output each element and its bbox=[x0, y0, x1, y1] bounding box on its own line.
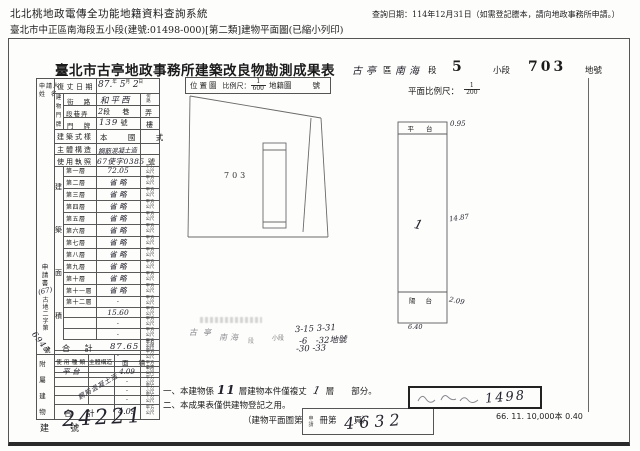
annex-use-type: 平 台 bbox=[54, 366, 88, 377]
map-note-subsection-label: 小段 bbox=[272, 333, 284, 342]
map-ref-label: 地籍圖 bbox=[269, 80, 292, 91]
houseno-unit-1: 號 bbox=[120, 119, 127, 127]
stamp-scribble bbox=[415, 389, 483, 407]
map-note-district: 古亭 bbox=[189, 327, 217, 338]
floor-area-unit: 平方公尺 bbox=[140, 308, 160, 318]
annex-row: ·平方公尺 bbox=[54, 396, 160, 405]
lane-value-wrap: 2段 巷 bbox=[98, 107, 129, 117]
note1-surveyed-floor-hw: 1 bbox=[311, 383, 321, 397]
street-suffix: 街路 bbox=[146, 95, 151, 105]
faded-stamp-text bbox=[200, 317, 262, 323]
floor-area-unit: 平方公尺 bbox=[140, 273, 160, 283]
section-label: 段 bbox=[428, 64, 437, 76]
floor-area-unit: 平方公尺 bbox=[140, 237, 160, 247]
day-unit: 日 bbox=[139, 80, 144, 85]
annex-area-value: · bbox=[114, 387, 140, 395]
floor-label: 第十層 bbox=[64, 274, 96, 283]
map-scale-fraction: 1 600 bbox=[251, 79, 266, 93]
floor-area-value: 省 略 bbox=[96, 249, 140, 260]
floor-area-value: 省 略 bbox=[96, 177, 140, 188]
plan-scale-fraction: 1 200 bbox=[464, 83, 479, 97]
plan-top-dim: 0.95 bbox=[450, 120, 466, 128]
floor-row: 第五層省 略平方公尺 bbox=[54, 213, 160, 225]
floor-area-value: 省 略 bbox=[96, 189, 140, 200]
floor-row: 第三層省 略平方公尺 bbox=[54, 189, 160, 201]
floor-area-value: 省 略 bbox=[96, 213, 140, 224]
floor-label: 第五層 bbox=[64, 214, 96, 223]
map-note-section-label: 段 bbox=[248, 336, 254, 345]
cadastral-sketch bbox=[183, 92, 333, 242]
survey-date-value: 87.年 5月 2日 bbox=[98, 79, 143, 90]
location-map-label: 位置圖 bbox=[190, 80, 219, 91]
print-info: 66. 11. 10,000本 0.40 bbox=[496, 411, 583, 422]
floor-area-value: 省 略 bbox=[96, 285, 140, 296]
registry-stamp-no: 1498 bbox=[484, 388, 526, 407]
floor-row: 第十一層省 略平方公尺 bbox=[54, 285, 160, 297]
floor-area-value: 72.05 bbox=[96, 166, 140, 175]
building-no-value: 24221 bbox=[61, 403, 144, 431]
applicant-doc-suffix: 號 bbox=[44, 344, 51, 354]
floor-area-value: 省 略 bbox=[96, 237, 140, 248]
floor-area-unit: 平方公尺 bbox=[140, 329, 160, 339]
floors-total-value: 87.65 bbox=[110, 342, 139, 352]
houseno-value: 139 bbox=[99, 118, 118, 128]
note1-pre: 一、本建物係 bbox=[163, 387, 214, 397]
applicant-doc-prefix: 古地二字第 bbox=[42, 297, 49, 332]
floor-row: 第九層省 略平方公尺 bbox=[54, 261, 160, 273]
plan-top-label: 平 台 bbox=[398, 123, 447, 133]
floor-area-unit: 平方公尺 bbox=[140, 189, 160, 199]
floor-label: 第三層 bbox=[64, 190, 96, 199]
note1-post: 層 部分。 bbox=[326, 387, 377, 397]
floor-area-unit: 平方公尺 bbox=[140, 261, 160, 271]
parcel-no: 703 bbox=[528, 59, 566, 75]
floor-row: 第八層省 略平方公尺 bbox=[54, 249, 160, 261]
lane-unit-1: 段 bbox=[103, 108, 110, 116]
floor-label: 第八層 bbox=[64, 250, 96, 259]
floor-area-value: 省 略 bbox=[96, 273, 140, 284]
floor-row: 第七層省 略平方公尺 bbox=[54, 237, 160, 249]
survey-date-year: 87. bbox=[98, 80, 112, 90]
plan-scale-wrap: 平面比例尺： 1 200 bbox=[408, 79, 480, 98]
district-name: 古亭 bbox=[352, 62, 380, 77]
map-note-section: 南海 bbox=[219, 332, 241, 343]
applicant-doc-word: 申請書 bbox=[41, 263, 49, 287]
year-unit: 年 bbox=[112, 80, 117, 85]
floor-row: 第二層省 略平方公尺 bbox=[54, 177, 160, 189]
scanned-query-page: 北北桃地政電傳全功能地籍資料查詢系統 查詢日期：114年12月31日（如需登記謄… bbox=[0, 0, 640, 451]
floor-area-unit: 平方公尺 bbox=[140, 285, 160, 295]
receipt-stamp-small: 申請 bbox=[307, 416, 315, 428]
receipt-stamp-no: 4632 bbox=[343, 410, 405, 433]
plan-width-dim: 6.40 bbox=[408, 323, 422, 331]
note-line-1: 一、本建物係11層建物本件僅複丈1層 部分。 bbox=[163, 383, 377, 397]
doorplate-group-label: 建物門牌 bbox=[54, 93, 64, 129]
floor-row: 第六層省 略平方公尺 bbox=[54, 225, 160, 237]
month-unit: 月 bbox=[125, 80, 130, 85]
floor-area-unit: 平方公尺 bbox=[140, 166, 160, 176]
subsection-no: 5 bbox=[452, 59, 462, 75]
annex-header-use: 使用種類 bbox=[56, 357, 87, 366]
floor-label: 第二層 bbox=[64, 178, 96, 187]
receipt-stamp-box: 申請 4632 bbox=[302, 408, 434, 435]
parcel-label: 地號 bbox=[585, 64, 602, 76]
floor-row: ·平方公尺 bbox=[54, 329, 160, 340]
page-subtitle: 臺北市中正區南海段五小段(建號:01498-000)[第二類]建物平面圖(已縮小… bbox=[10, 22, 344, 36]
floors-total-label: 合 計 bbox=[62, 343, 99, 354]
floor-label: 第一層 bbox=[64, 166, 96, 175]
note-line-2: 二、本成果表僅供建物登記之用。 bbox=[163, 399, 291, 411]
note1-floors-hw: 11 bbox=[217, 383, 236, 397]
map-scale-label: 比例尺： bbox=[223, 81, 251, 91]
note1-mid: 層建物本件僅複丈 bbox=[239, 387, 307, 397]
building-area-group-label: 建築面積 bbox=[54, 166, 64, 340]
floor-row: ·平方公尺 bbox=[54, 318, 160, 329]
floor-row: 15.60平方公尺 bbox=[54, 308, 160, 319]
annex-area-unit: 平方公尺 bbox=[140, 367, 160, 377]
style-label: 建築式樣 bbox=[57, 132, 93, 142]
floor-area-unit: 平方公尺 bbox=[140, 318, 160, 328]
floor-label: 第十二層 bbox=[64, 297, 96, 306]
floor-row: 第四層省 略平方公尺 bbox=[54, 201, 160, 213]
system-title: 北北桃地政電傳全功能地籍資料查詢系統 bbox=[10, 6, 208, 21]
floor-area-value: 省 略 bbox=[96, 225, 140, 236]
map-parcel-number: 703 bbox=[224, 171, 248, 180]
floor-area-unit: 平方公尺 bbox=[140, 249, 160, 259]
section-name: 南海 bbox=[395, 62, 423, 77]
floor-area-unit: 平方公尺 bbox=[140, 225, 160, 235]
annex-header-structure: 主體構造 bbox=[89, 357, 112, 366]
floors-total-unit: 平方公尺 bbox=[140, 342, 160, 352]
houseno-value-wrap: 139 號 bbox=[99, 118, 127, 128]
floor-label: 第四層 bbox=[64, 202, 96, 211]
map-ref-no-label: 號 bbox=[313, 80, 321, 91]
floor-label: 第六層 bbox=[64, 226, 96, 235]
floor-area-value: · bbox=[96, 319, 140, 328]
floor-row: 第十二層·平方公尺 bbox=[54, 297, 160, 308]
floor-area-unit: 平方公尺 bbox=[140, 297, 160, 307]
floor-area-unit: 平方公尺 bbox=[140, 213, 160, 223]
map-note-parcels-3: -30 -33 bbox=[296, 343, 326, 354]
floor-label: 第十一層 bbox=[64, 286, 96, 295]
floor-area-value: 15.60 bbox=[96, 308, 140, 317]
floor-label: 第七層 bbox=[64, 238, 96, 247]
district-label: 區 bbox=[383, 64, 392, 76]
floor-label: 第九層 bbox=[64, 262, 96, 271]
right-divider bbox=[588, 78, 589, 412]
annex-group-label: 附屬建物 bbox=[38, 356, 47, 420]
floor-area-value: · bbox=[96, 297, 140, 306]
plan-scale-den: 200 bbox=[464, 89, 479, 97]
registry-stamp-box: 1498 bbox=[408, 386, 542, 409]
query-date: 查詢日期：114年12月31日（如需登記謄本，請向地政事務所申請。） bbox=[372, 9, 620, 20]
floor-area-value: 省 略 bbox=[96, 201, 140, 212]
floor-area-value: · bbox=[96, 330, 140, 339]
plan-bottom-label: 陽 台 bbox=[398, 295, 447, 305]
floor-area-unit: 平方公尺 bbox=[140, 201, 160, 211]
plan-scale-label: 平面比例尺： bbox=[408, 87, 459, 97]
form-title: 臺北市古亭地政事務所建築改良物勘測成果表 bbox=[55, 59, 335, 79]
annex-area-value: 4.09 bbox=[114, 368, 140, 376]
floor-row: 第一層72.05平方公尺 bbox=[54, 166, 160, 177]
lane-unit-2: 巷 bbox=[122, 108, 129, 116]
floor-area-unit: 平方公尺 bbox=[140, 177, 160, 187]
floor-area-value: 省 略 bbox=[96, 261, 140, 272]
floor-row: 第十層省 略平方公尺 bbox=[54, 273, 160, 285]
subsection-label: 小段 bbox=[493, 64, 510, 76]
style-value: 本 國 式 bbox=[100, 132, 172, 143]
survey-date-label: 復丈日期 bbox=[57, 82, 95, 92]
floor-area-rows: 第一層72.05平方公尺第二層省 略平方公尺第三層省 略平方公尺第四層省 略平方… bbox=[54, 166, 160, 340]
